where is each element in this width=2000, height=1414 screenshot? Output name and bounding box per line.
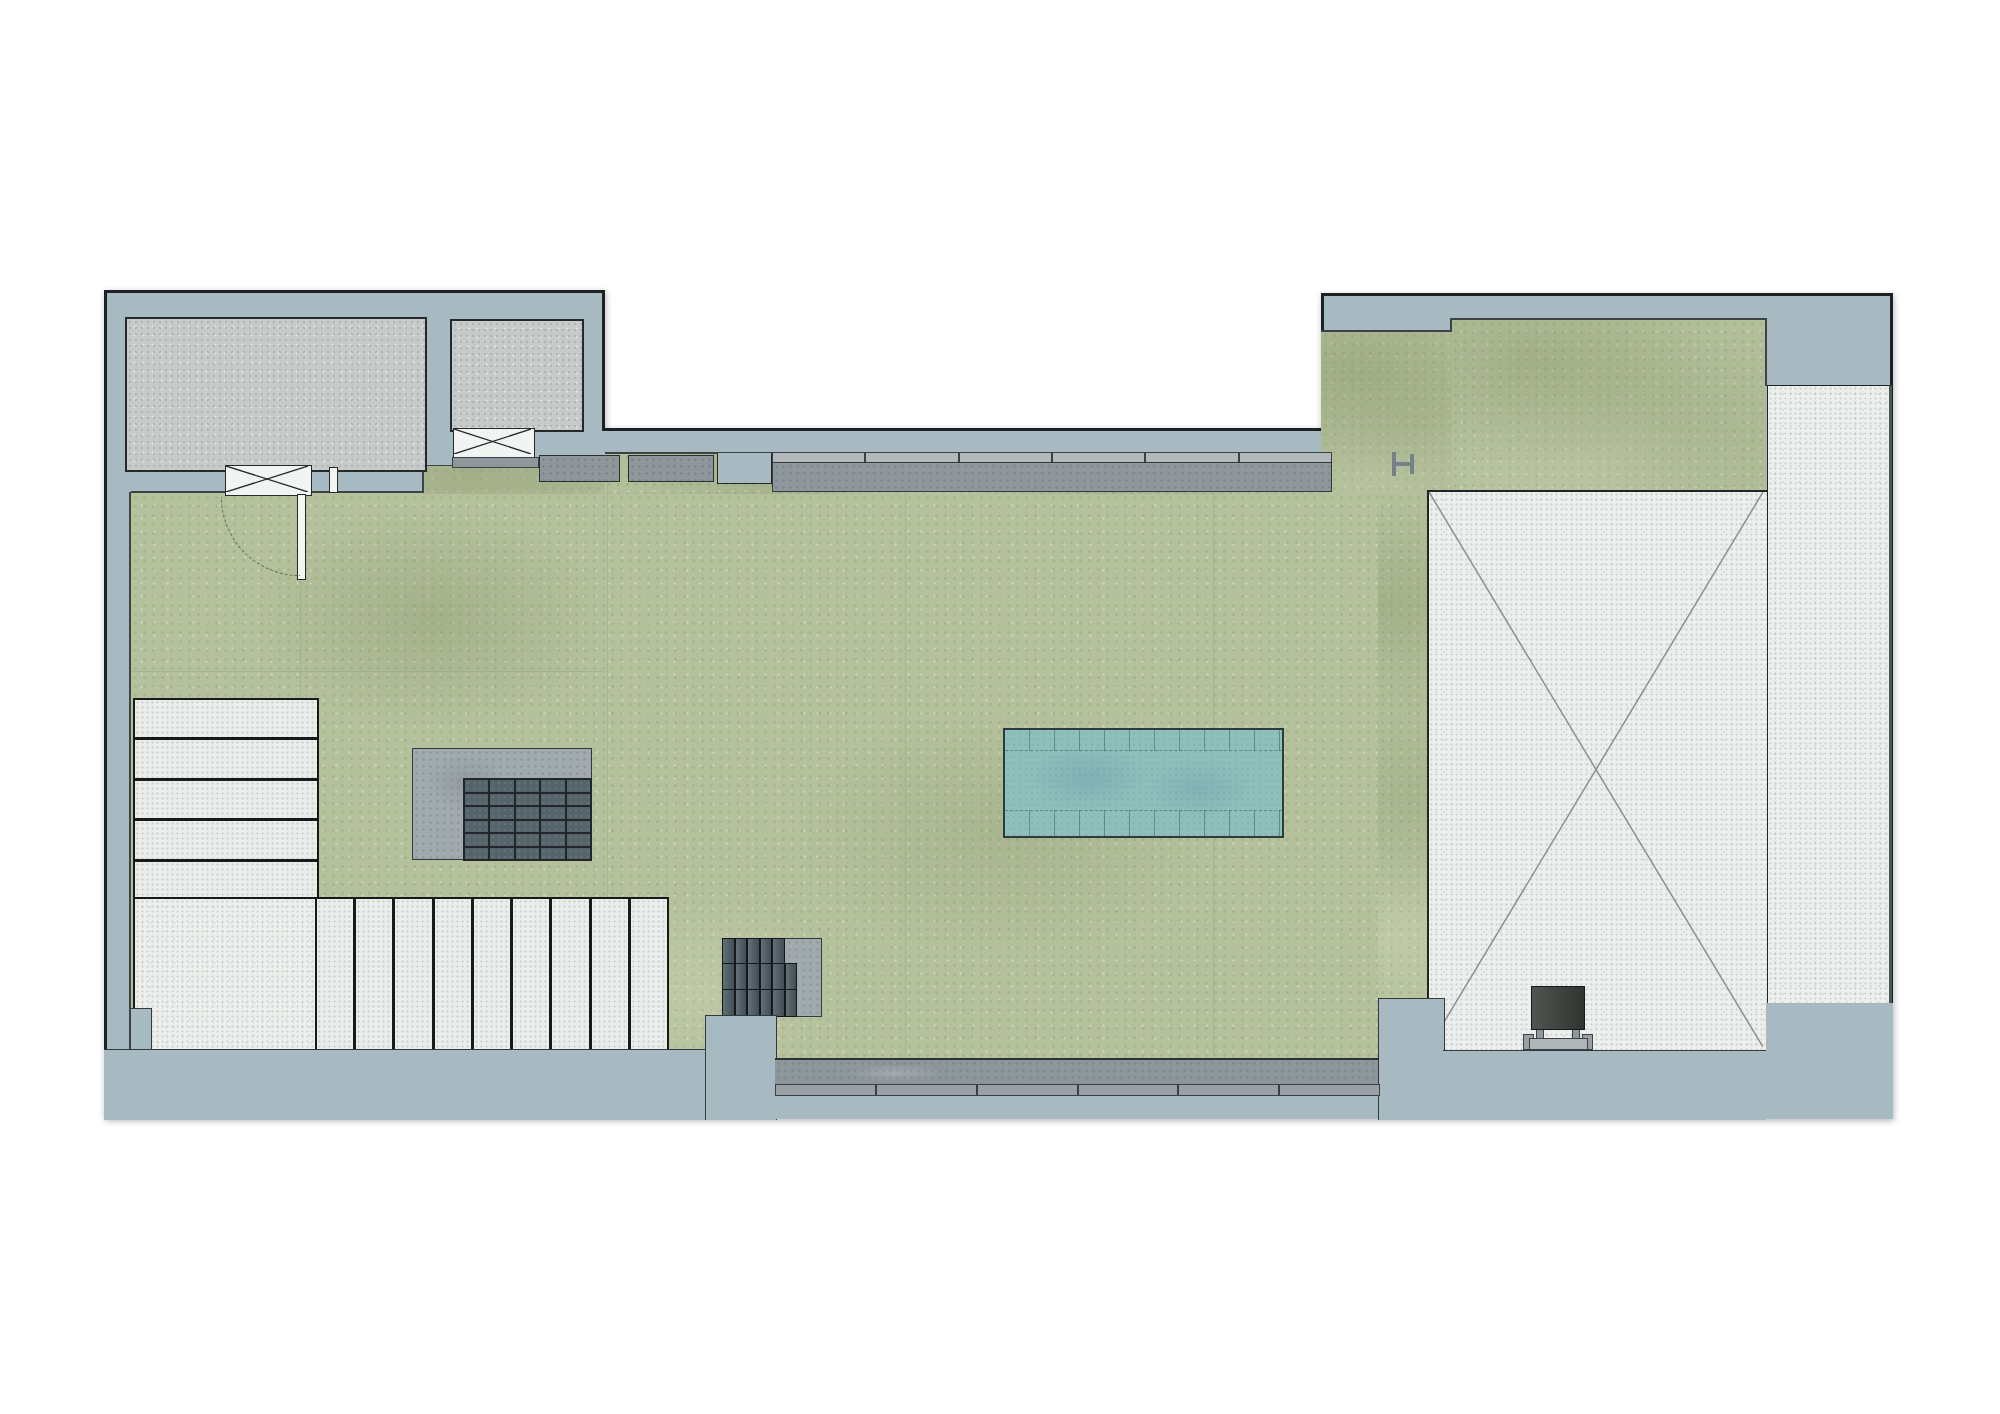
window-opening-cross: [453, 428, 535, 458]
louvre-slat: [723, 990, 734, 1016]
louvre-slat: [736, 990, 747, 1016]
stair-tread: [135, 700, 317, 737]
paving-segment: [1280, 1085, 1379, 1095]
wall-inner-edge-northeast-b: [1451, 318, 1766, 320]
wall-inner-edge-northeast-a: [1321, 330, 1451, 332]
stair-tread: [135, 821, 317, 858]
paving-segment: [1079, 1085, 1178, 1095]
paver-tile: [490, 807, 513, 819]
paver-tile: [490, 780, 513, 792]
louvre-slat: [748, 939, 759, 964]
paver-tile: [516, 794, 539, 806]
paver-tile: [516, 834, 539, 846]
louvre-slat: [748, 990, 759, 1016]
southeast-wall-band: [1766, 1003, 1893, 1119]
perimeter-planter-body: [772, 462, 1332, 492]
louvre-slat: [723, 939, 734, 964]
stair-tread: [474, 899, 510, 1051]
paver-tile: [541, 848, 564, 860]
paver-tile: [541, 794, 564, 806]
paver-tile: [541, 807, 564, 819]
paver-tile: [567, 821, 590, 833]
louvre-slat: [761, 939, 772, 964]
wall-inner-edge-northeast-step: [1450, 318, 1452, 332]
paver-tile: [541, 821, 564, 833]
steel-column-symbol: [1392, 452, 1414, 476]
paver-tile: [567, 794, 590, 806]
planter-box: [628, 455, 714, 482]
roof-hatch-box: [1531, 986, 1585, 1030]
paver-grid: [463, 778, 592, 861]
east-roof-strip: [1767, 385, 1892, 1005]
turf-seam: [905, 493, 906, 1055]
south-wall-band: [104, 1049, 705, 1120]
stair-tread: [135, 740, 317, 777]
stair-tread: [513, 899, 549, 1051]
paver-tile: [490, 821, 513, 833]
wall-inner-edge-west: [129, 492, 131, 1050]
paver-tile: [541, 780, 564, 792]
louvre-slat: [761, 964, 772, 990]
pool-tile-band-bottom: [1005, 810, 1282, 836]
planter-box: [539, 455, 620, 482]
south-paving-kerb: [775, 1084, 1380, 1096]
stair-tread: [135, 781, 317, 818]
paver-tile: [465, 807, 488, 819]
lawn-northeast-low: [1321, 331, 1451, 494]
window-opening-cross: [225, 465, 312, 496]
louvre-slat: [748, 964, 759, 990]
paver-tile: [465, 834, 488, 846]
stair-tread: [552, 899, 588, 1051]
stair-tread: [435, 899, 471, 1051]
solar-canopy-row: [722, 938, 785, 965]
roof-room-small: [450, 319, 584, 432]
south-wall-band: [1443, 1050, 1766, 1120]
paver-tile: [516, 780, 539, 792]
south-wall-pier: [705, 1015, 777, 1120]
paver-tile: [567, 807, 590, 819]
paver-tile: [567, 834, 590, 846]
roof-terrace-plan: [0, 0, 2000, 1414]
paving-segment: [978, 1085, 1077, 1095]
paver-tile: [541, 834, 564, 846]
stair-tread: [631, 899, 667, 1051]
wall-inner-edge-east: [1765, 318, 1767, 386]
louvre-slat: [786, 964, 797, 990]
lawn-east-strip: [1378, 493, 1427, 998]
south-paving-body: [775, 1058, 1378, 1086]
pool-tile-band-top: [1005, 730, 1282, 751]
paver-tile: [516, 807, 539, 819]
louvre-slat: [773, 964, 784, 990]
south-wall-stub: [1378, 998, 1445, 1120]
door-frame-post: [329, 467, 338, 493]
louvre-slat: [773, 939, 784, 964]
solar-canopy-row: [722, 963, 797, 991]
stair-flight-lower: [315, 897, 669, 1053]
stair-landing: [133, 897, 319, 1053]
paver-tile: [465, 848, 488, 860]
south-wall-band: [775, 1094, 1378, 1119]
turf-seam: [131, 671, 603, 672]
paver-tile: [490, 794, 513, 806]
stair-tread: [135, 862, 317, 899]
stair-tread: [395, 899, 431, 1051]
paving-segment: [1179, 1085, 1278, 1095]
louvre-slat: [736, 964, 747, 990]
paver-tile: [465, 794, 488, 806]
paver-tile: [490, 848, 513, 860]
louvre-slat: [723, 964, 734, 990]
sill-planter-strip: [452, 457, 539, 468]
paver-tile: [490, 834, 513, 846]
roof-room-large: [125, 317, 427, 472]
stair-tread: [592, 899, 628, 1051]
paver-tile: [567, 848, 590, 860]
paver-tile: [567, 780, 590, 792]
louvre-slat: [786, 990, 797, 1016]
stair-tread: [317, 899, 353, 1051]
bench-base-bar: [1529, 1038, 1588, 1050]
paver-tile: [516, 821, 539, 833]
paving-segment: [776, 1085, 875, 1095]
skylight: [1427, 490, 1770, 1054]
paver-tile: [465, 780, 488, 792]
louvre-slat: [761, 990, 772, 1016]
wall-notch: [131, 1008, 152, 1050]
paving-segment: [877, 1085, 976, 1095]
solar-canopy-row: [722, 989, 797, 1017]
louvre-slat: [736, 939, 747, 964]
stair-tread: [356, 899, 392, 1051]
pool: [1003, 728, 1284, 838]
paver-tile: [465, 821, 488, 833]
stair-flight-upper: [133, 698, 319, 901]
paver-tile: [516, 848, 539, 860]
beam-web: [1395, 462, 1411, 466]
louvre-slat: [773, 990, 784, 1016]
wall-pier: [717, 453, 772, 484]
lawn-northeast-high: [1451, 319, 1766, 491]
